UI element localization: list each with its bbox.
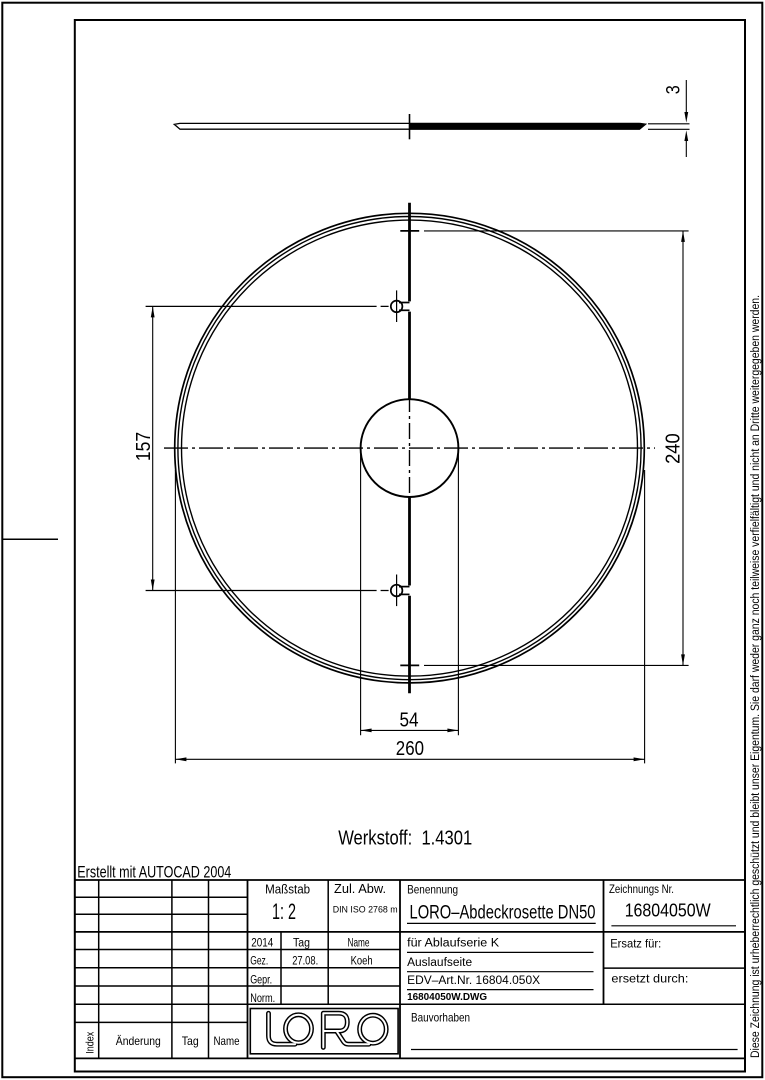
svg-text:3: 3 [664, 85, 685, 94]
svg-text:EDV–Art.Nr. 16804.050X: EDV–Art.Nr. 16804.050X [407, 975, 540, 987]
svg-text:ersetzt durch:: ersetzt durch: [611, 972, 688, 986]
svg-text:Maßstab: Maßstab [265, 882, 310, 897]
svg-text:Bauvorhaben: Bauvorhaben [411, 1011, 470, 1025]
svg-text:240: 240 [663, 433, 685, 464]
svg-text:1: 2: 1: 2 [272, 899, 296, 924]
svg-text:für Ablaufserie K: für Ablaufserie K [407, 938, 499, 950]
svg-text:Änderung: Änderung [116, 1034, 161, 1048]
svg-text:Auslaufseite: Auslaufseite [407, 957, 472, 969]
svg-text:Benennung: Benennung [407, 882, 458, 896]
svg-text:16804050W: 16804050W [625, 901, 711, 921]
svg-text:2014: 2014 [251, 938, 274, 950]
svg-text:Index: Index [85, 1031, 97, 1053]
svg-text:Diese Zeichnung ist urheberrec: Diese Zeichnung ist urheberrechtlich ges… [750, 295, 762, 1058]
svg-text:Norm.: Norm. [250, 993, 275, 1005]
svg-text:16804050W.DWG: 16804050W.DWG [407, 991, 487, 1003]
svg-text:LORO–Abdeckrosette DN50: LORO–Abdeckrosette DN50 [410, 902, 596, 924]
svg-text:Ersatz für:: Ersatz für: [610, 937, 661, 951]
svg-text:260: 260 [396, 738, 424, 760]
svg-text:54: 54 [399, 710, 418, 732]
svg-text:157: 157 [133, 432, 155, 461]
svg-text:Name: Name [214, 1034, 240, 1048]
svg-text:Erstellt mit AUTOCAD 2004: Erstellt mit AUTOCAD 2004 [77, 863, 231, 882]
svg-text:Zeichnungs Nr.: Zeichnungs Nr. [609, 882, 674, 896]
svg-text:Werkstoff: 1.4301: Werkstoff: 1.4301 [338, 827, 472, 849]
svg-text:Zul. Abw.: Zul. Abw. [334, 881, 386, 896]
svg-text:Gez.: Gez. [250, 956, 268, 968]
svg-text:Tag: Tag [182, 1034, 199, 1048]
svg-text:Name: Name [348, 938, 370, 950]
svg-text:Koeh: Koeh [351, 956, 373, 968]
svg-text:DIN ISO 2768 m: DIN ISO 2768 m [333, 905, 398, 916]
svg-text:Gepr.: Gepr. [250, 974, 272, 986]
svg-text:27.08.: 27.08. [292, 956, 318, 968]
svg-text:Tag: Tag [293, 938, 310, 950]
